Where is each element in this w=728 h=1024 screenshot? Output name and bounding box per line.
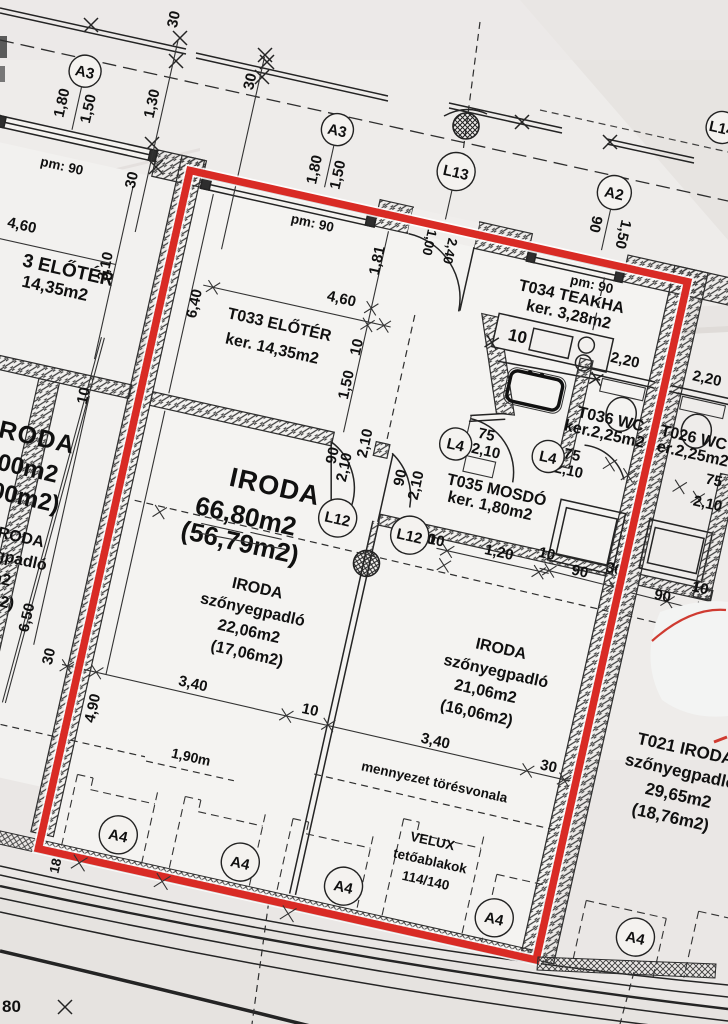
svg-text:10: 10 <box>506 325 529 348</box>
svg-text:80: 80 <box>2 997 21 1016</box>
